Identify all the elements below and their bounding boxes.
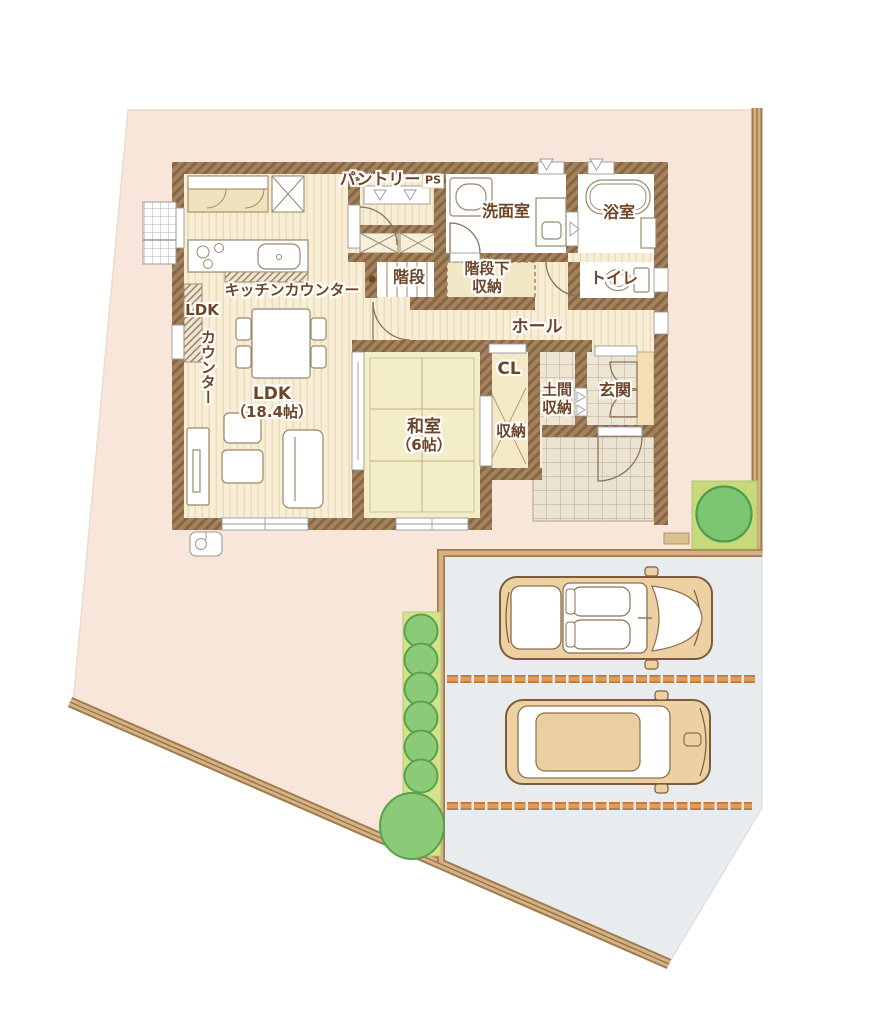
label-japanese-room: 和室 （6帖） [396, 417, 451, 455]
bath-counter [641, 218, 656, 248]
seat-back [566, 589, 575, 614]
label-bathroom: 浴室 [603, 204, 635, 223]
floor-plan-canvas [0, 0, 870, 1024]
car-seat [572, 620, 630, 649]
service-deck-grid [143, 202, 176, 264]
car-mirror [655, 784, 668, 793]
label-ldk-counter-1: LDK [185, 302, 219, 320]
ottoman [222, 450, 263, 483]
stairs-start-dot [369, 276, 376, 283]
seat-back [566, 622, 575, 647]
label-closet: CL [497, 359, 520, 379]
wall-stairs-right [434, 253, 447, 298]
dining-table [252, 309, 310, 378]
tree-icon [697, 487, 752, 542]
car-bottom [506, 691, 710, 793]
sofa [283, 430, 323, 508]
label-storage: 収納 [496, 423, 526, 441]
tv [193, 450, 200, 492]
dining-chair [236, 318, 251, 340]
car-mirror [645, 660, 658, 669]
label-stairs: 階段 [393, 269, 425, 288]
label-entrance: 玄関 [599, 382, 631, 401]
car-top [500, 567, 712, 669]
refrigerator [272, 176, 304, 212]
car-mirror [645, 567, 658, 576]
step-stone [664, 533, 689, 544]
sink [258, 244, 300, 269]
wall-storage-bottom [480, 468, 542, 480]
cupboard [188, 176, 268, 212]
dining-chair [311, 346, 326, 368]
floor-plan-page: パントリー PS 洗面室 浴室 キッチンカウンター 階段 階段下 収納 トイレ … [0, 0, 870, 1024]
label-washroom: 洗面室 [482, 203, 530, 222]
car-mirror [655, 691, 668, 700]
car-roof [536, 713, 640, 771]
entrance-porch-tiles [533, 437, 654, 521]
label-ps: PS [423, 175, 443, 188]
wall-cl-right [528, 352, 540, 480]
label-ldk-counter-2: カウンター [198, 330, 216, 405]
entrance-tree-planter [692, 481, 757, 549]
label-kitchen-counter: キッチンカウンター [224, 282, 359, 300]
garden-faucet-pan [190, 532, 222, 556]
wall-toilet-bottom [568, 298, 656, 310]
dining-chair [236, 346, 251, 368]
car-seat [572, 587, 630, 616]
entrance-door-frame [637, 352, 654, 428]
wall-toilet-left [568, 262, 580, 298]
label-under-stairs-storage: 階段下 収納 [464, 260, 509, 295]
label-pantry: パントリー [340, 171, 421, 190]
label-hall: ホール [512, 317, 563, 337]
closet-row [360, 233, 436, 253]
label-ldk: LDK （18.4帖） [231, 384, 313, 422]
hedge-bush [405, 760, 438, 793]
label-toilet: トイレ [590, 270, 638, 289]
wall-washitsu-left [352, 470, 364, 518]
car-rear-window [511, 586, 561, 649]
dining-chair [311, 318, 326, 340]
wall-stairs-bottom [410, 297, 535, 310]
large-bush [380, 793, 444, 859]
wall-hall-south [352, 340, 592, 352]
label-doma-storage: 土間 収納 [542, 381, 572, 416]
